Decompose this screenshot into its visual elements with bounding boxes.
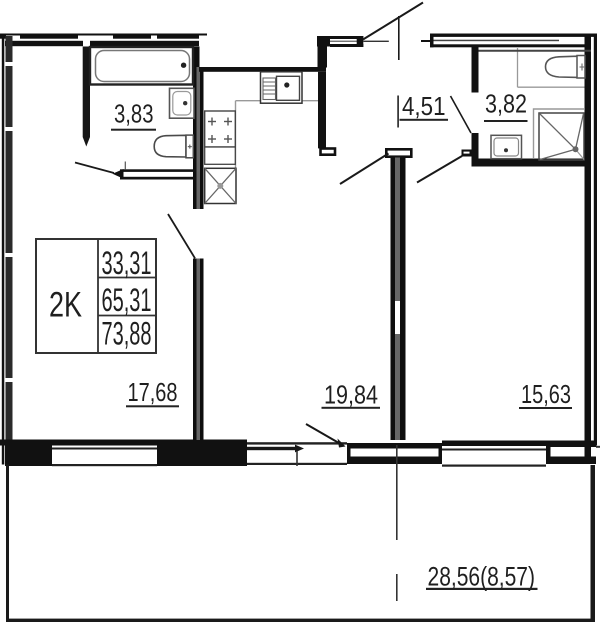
svg-text:17,68: 17,68 <box>128 377 178 407</box>
svg-text:15,63: 15,63 <box>521 379 571 409</box>
svg-text:28,56(8,57): 28,56(8,57) <box>428 562 536 592</box>
svg-text:73,88: 73,88 <box>102 316 152 352</box>
svg-text:2K: 2K <box>49 286 82 325</box>
svg-text:3,83: 3,83 <box>114 99 154 129</box>
svg-text:19,84: 19,84 <box>324 380 378 410</box>
svg-text:65,31: 65,31 <box>102 282 152 318</box>
svg-text:33,31: 33,31 <box>102 245 152 281</box>
svg-text:3,82: 3,82 <box>485 89 527 119</box>
svg-text:4,51: 4,51 <box>402 91 446 121</box>
